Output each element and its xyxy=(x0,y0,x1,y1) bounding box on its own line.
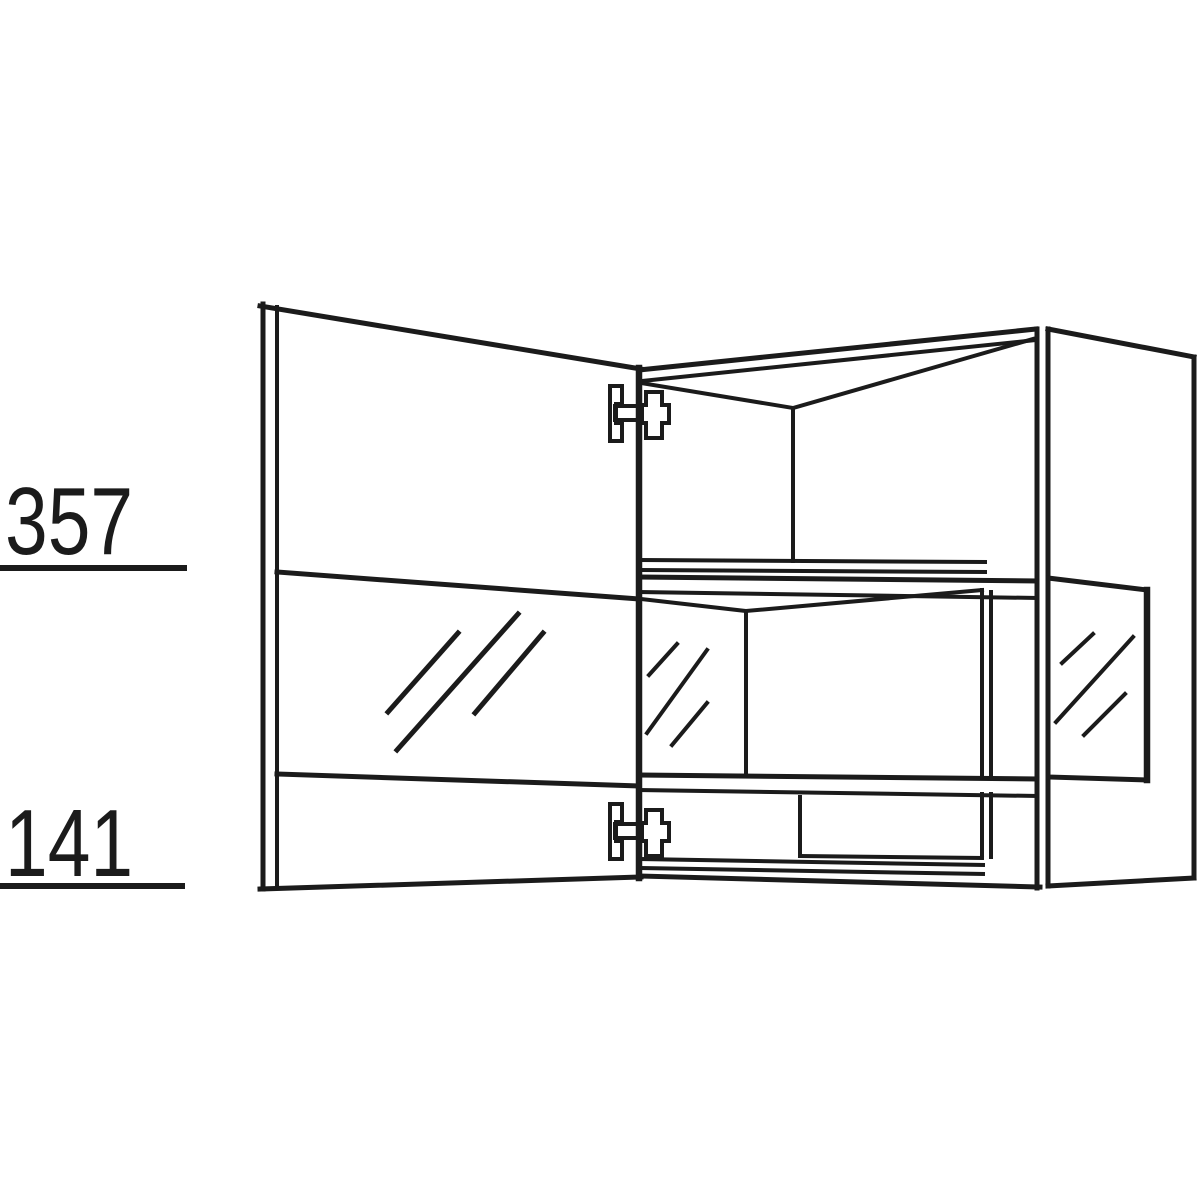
side-bottom-edge xyxy=(1048,878,1194,886)
door-glass-segment xyxy=(388,614,543,750)
top-hinge-mounting-plate xyxy=(640,392,669,438)
upper-rail-bottom-line xyxy=(639,592,1037,598)
bottom-hinge-door-bracket xyxy=(610,804,622,859)
front-top-edge-inner xyxy=(642,340,1036,381)
dimension-lower-value: 141 xyxy=(5,796,133,892)
bottom-compartment-interior xyxy=(641,794,991,874)
dimension-upper-value: 357 xyxy=(5,474,133,570)
door-glass-hatch-stroke xyxy=(475,633,543,713)
upper-shelf-front-rail xyxy=(639,577,1037,598)
right-glass-hatch-stroke xyxy=(1062,634,1093,663)
technical-drawing-canvas: 357 141 xyxy=(0,0,1200,1200)
left-glass-hatch-stroke xyxy=(649,644,677,675)
middle-compartment-interior xyxy=(641,590,991,776)
dimension-lower-reference-line xyxy=(0,883,185,889)
door-bottom-edge xyxy=(260,877,641,889)
top-hinge-door-bracket xyxy=(610,386,622,441)
front-bottom-edge xyxy=(639,876,1040,887)
right-side-glass-panel xyxy=(1048,578,1147,780)
door-lower-division-line xyxy=(277,774,639,786)
left-glass-hatch-stroke xyxy=(647,650,707,733)
right-glass-hatch-stroke xyxy=(1084,694,1125,735)
bottom-face-front-line xyxy=(641,868,983,874)
bottom-floor-back-edge xyxy=(800,856,982,858)
bottom-hinge-mounting-plate xyxy=(640,810,669,856)
lower-rail-bottom-line xyxy=(639,790,1037,796)
shelf-top-back-line xyxy=(641,560,985,562)
left-glass-hatch-stroke xyxy=(672,703,707,745)
door-top-edge xyxy=(260,306,641,369)
lower-shelf-front-rail xyxy=(639,775,1037,796)
side-top-edge xyxy=(1048,329,1194,357)
dimension-upper-reference-line xyxy=(0,565,187,571)
door-upper-division-line xyxy=(277,572,639,599)
bottom-floor-front-edge xyxy=(641,859,983,865)
left-glass-top-edge xyxy=(641,599,746,611)
door-glass-hatch-stroke xyxy=(388,633,458,712)
right-glass-hatch-stroke xyxy=(1056,637,1133,722)
upper-rail-top-line xyxy=(639,577,1037,581)
cabinet-line-drawing xyxy=(0,0,1200,1200)
lower-rail-top-line xyxy=(639,775,1037,779)
shelf-top-front-line xyxy=(641,570,985,572)
open-door xyxy=(260,304,641,889)
front-top-edge xyxy=(639,329,1036,370)
